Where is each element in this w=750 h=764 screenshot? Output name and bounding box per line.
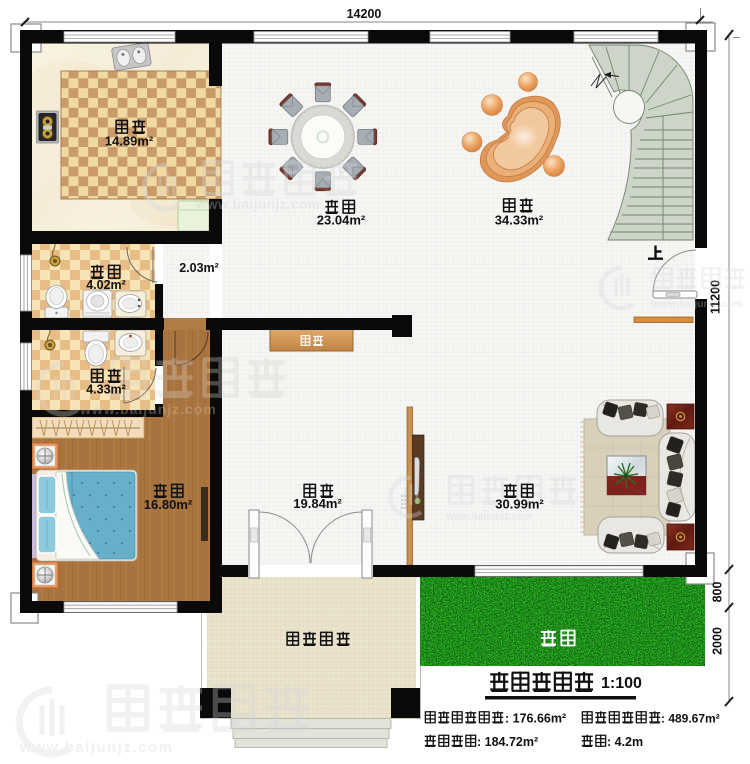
svg-text:www.baijunjz.com: www.baijunjz.com — [79, 401, 217, 417]
svg-text:www.baijunjz.com: www.baijunjz.com — [445, 511, 532, 522]
svg-text:www.baijunjz.com: www.baijunjz.com — [651, 298, 743, 310]
svg-text:4.02m²: 4.02m² — [86, 278, 126, 292]
svg-text:: 176.66m²: : 176.66m² — [505, 712, 566, 726]
svg-text:www.baijunjz.com: www.baijunjz.com — [19, 739, 173, 756]
svg-text:19.84m²: 19.84m² — [293, 496, 342, 511]
svg-text:30.99m²: 30.99m² — [495, 497, 544, 512]
svg-text:www.baijunjz.com: www.baijunjz.com — [195, 197, 321, 212]
svg-text:14200: 14200 — [347, 7, 382, 21]
svg-text:: 489.67m²: : 489.67m² — [661, 712, 720, 726]
svg-text:1:100: 1:100 — [601, 675, 642, 692]
svg-text:34.33m²: 34.33m² — [495, 213, 544, 228]
svg-text:2.03m²: 2.03m² — [179, 261, 219, 275]
svg-text:14.89m²: 14.89m² — [105, 134, 154, 149]
svg-text:23.04m²: 23.04m² — [317, 213, 366, 228]
svg-text:: 184.72m²: : 184.72m² — [477, 735, 538, 749]
svg-text:: 4.2m: : 4.2m — [607, 735, 643, 749]
svg-text:16.80m²: 16.80m² — [144, 497, 193, 512]
svg-text:2000: 2000 — [711, 627, 725, 655]
svg-text:800: 800 — [711, 582, 725, 603]
svg-text:4.33m²: 4.33m² — [86, 383, 126, 397]
